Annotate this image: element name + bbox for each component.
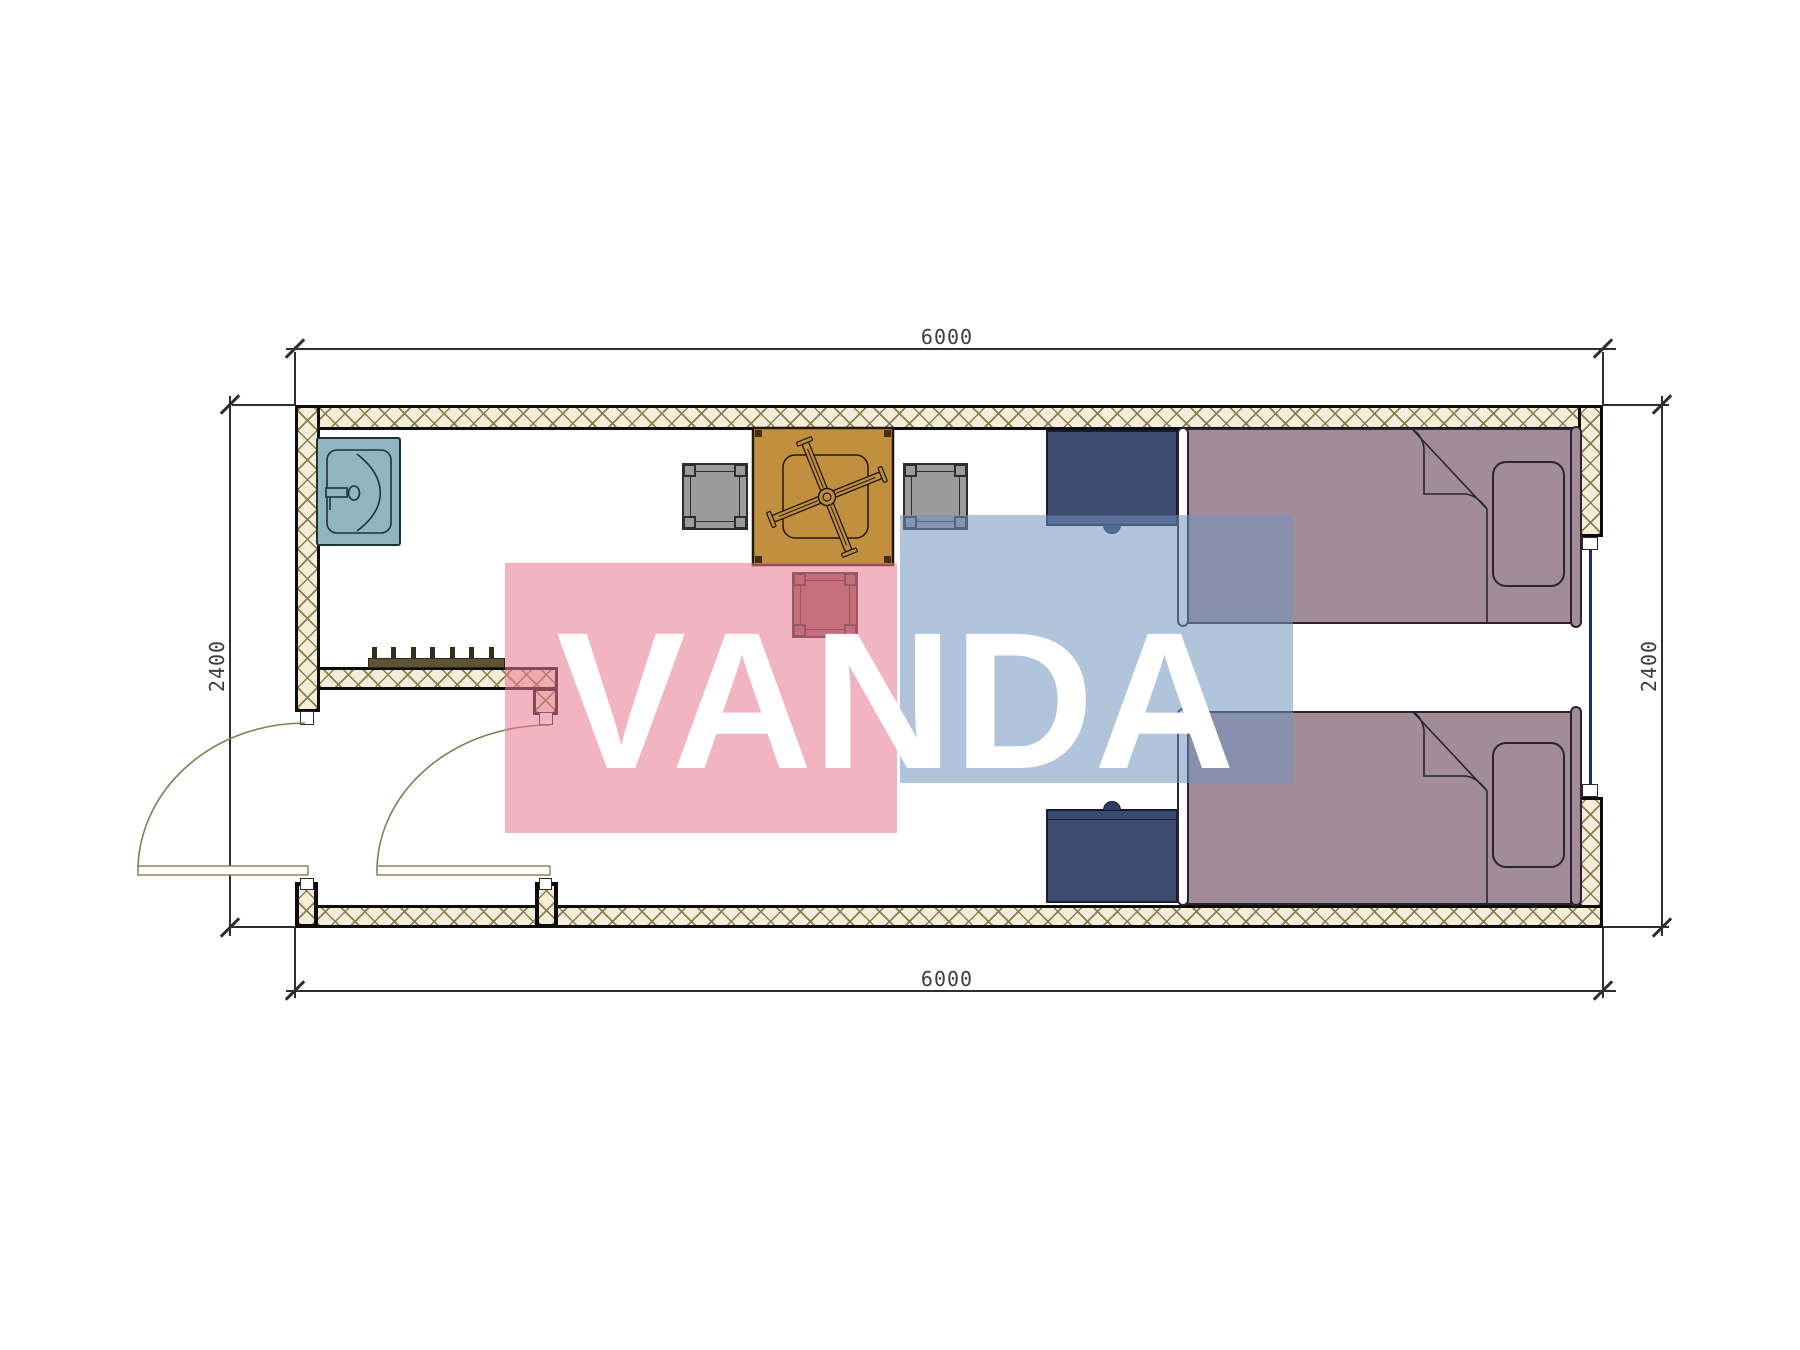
coat-rack-hook	[391, 647, 396, 659]
coat-rack-hook	[469, 647, 474, 659]
coat-rack-bar	[368, 658, 505, 668]
stool-leg	[734, 516, 747, 529]
dimension-value-top: 6000	[895, 326, 999, 350]
stool-leg	[683, 464, 696, 477]
door-leaf-left	[138, 866, 308, 875]
coat-rack-hook	[450, 647, 455, 659]
extension-line	[232, 926, 295, 928]
stool-leg	[954, 464, 967, 477]
window-sill-lower	[1582, 784, 1598, 797]
dimension-value-bottom: 6000	[895, 968, 999, 992]
extension-line	[1602, 352, 1604, 405]
coat-rack-hook	[489, 647, 494, 659]
window-sill-upper	[1582, 537, 1598, 550]
coat-rack-hook	[430, 647, 435, 659]
nightstand-top	[1046, 430, 1178, 526]
window-glazing-line	[1589, 550, 1592, 784]
nightstand-bottom	[1046, 809, 1178, 903]
table-with-fan	[751, 426, 896, 568]
floor-plan-canvas: 6000 6000 2400 2400	[0, 0, 1800, 1350]
cabinet-front-line	[1048, 811, 1176, 820]
coat-rack-hook	[411, 647, 416, 659]
extension-line	[294, 352, 296, 405]
watermark-text: VANDA	[556, 604, 1235, 799]
coat-rack-hook	[372, 647, 377, 659]
stool-left	[682, 463, 748, 530]
stool-leg	[904, 464, 917, 477]
door-swing-arc-left	[138, 723, 305, 871]
dimension-value-right: 2400	[1638, 614, 1662, 718]
sink-symbol	[315, 436, 407, 551]
extension-line	[232, 404, 295, 406]
door-leaf-right	[377, 866, 550, 875]
stool-leg	[683, 516, 696, 529]
stool-leg	[734, 464, 747, 477]
stool-seat	[690, 471, 740, 522]
